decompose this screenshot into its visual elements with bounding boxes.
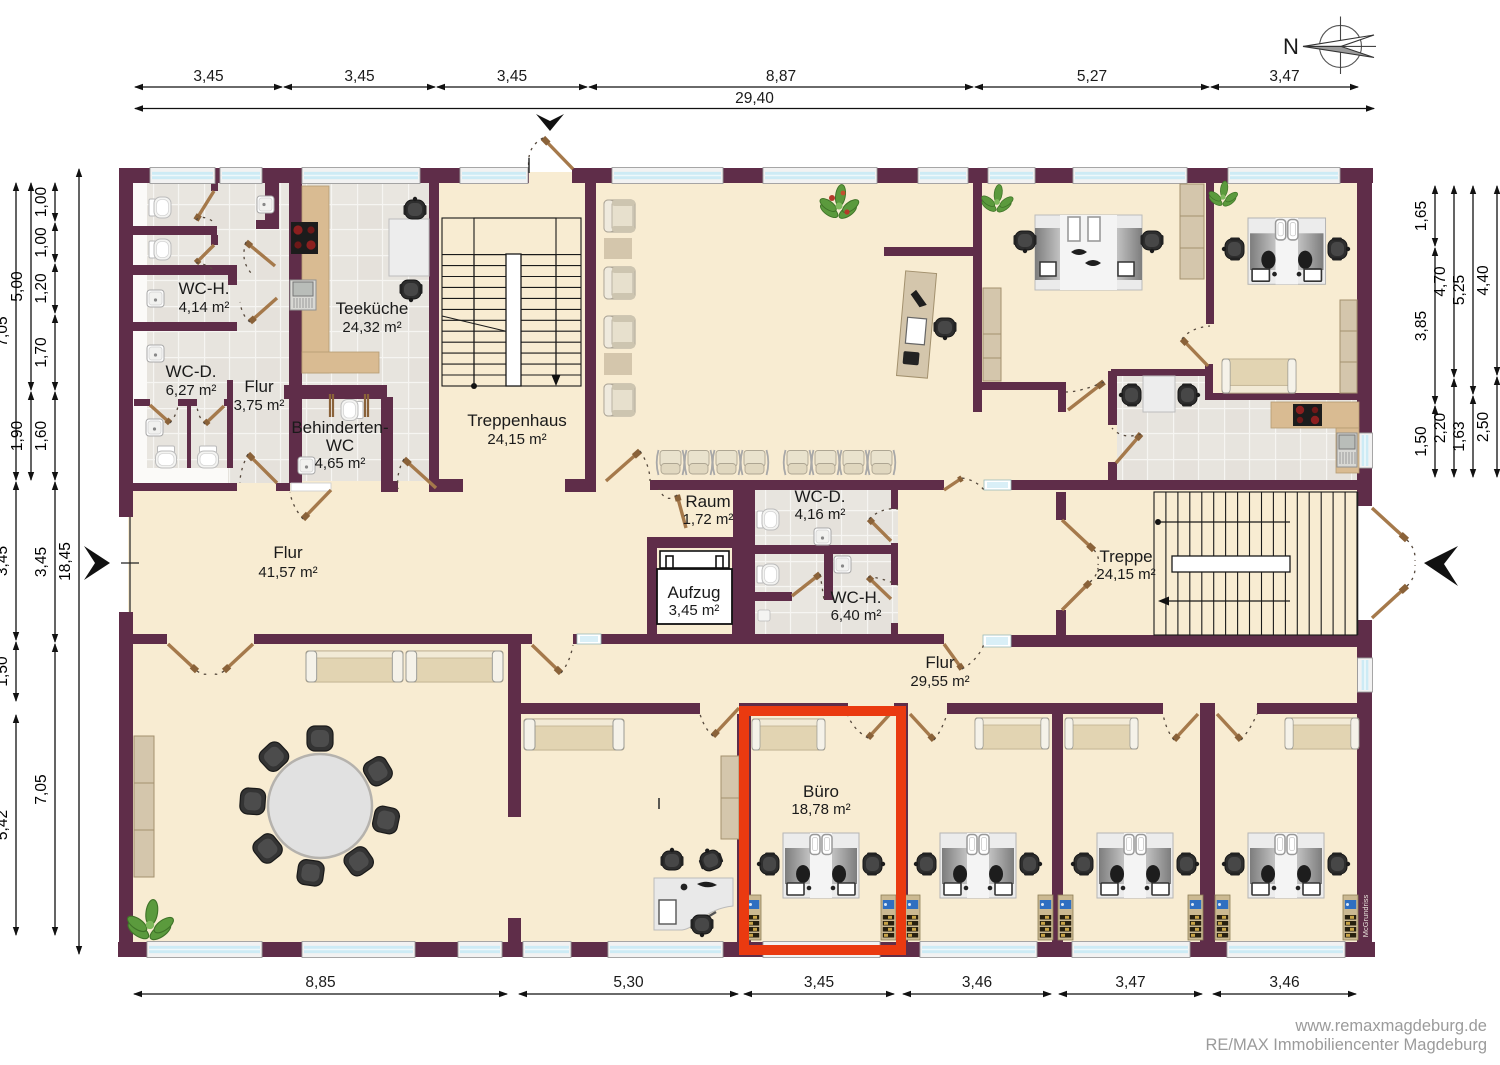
svg-text:5,30: 5,30 [613, 974, 644, 991]
svg-text:Aufzug: Aufzug [668, 583, 721, 602]
svg-text:5,25: 5,25 [1451, 275, 1468, 305]
svg-text:3,75 m²: 3,75 m² [234, 397, 285, 414]
svg-text:3,47: 3,47 [1269, 68, 1299, 85]
svg-text:3,45: 3,45 [33, 547, 50, 577]
svg-text:29,40: 29,40 [735, 90, 774, 107]
svg-text:Flur: Flur [244, 377, 274, 396]
svg-text:1,50: 1,50 [1413, 426, 1430, 457]
svg-text:8,85: 8,85 [305, 974, 335, 991]
svg-text:7,05: 7,05 [0, 316, 11, 346]
svg-text:3,45: 3,45 [0, 546, 11, 576]
svg-text:18,45: 18,45 [57, 542, 74, 581]
svg-text:Büro: Büro [803, 782, 839, 801]
svg-text:29,55 m²: 29,55 m² [910, 673, 969, 690]
svg-text:WC-H.: WC-H. [179, 279, 230, 298]
svg-text:3,46: 3,46 [1269, 974, 1299, 991]
svg-text:Flur: Flur [925, 653, 955, 672]
svg-text:3,85: 3,85 [1413, 311, 1430, 341]
svg-text:18,78 m²: 18,78 m² [791, 801, 850, 818]
svg-text:4,40: 4,40 [1475, 265, 1492, 296]
svg-text:7,05: 7,05 [33, 774, 50, 804]
svg-text:41,57 m²: 41,57 m² [258, 564, 317, 581]
svg-text:WC: WC [326, 436, 354, 455]
svg-text:24,32 m²: 24,32 m² [342, 319, 401, 336]
svg-text:Behinderten-: Behinderten- [291, 418, 388, 437]
svg-text:5,42: 5,42 [0, 810, 11, 840]
svg-text:1,00: 1,00 [33, 187, 50, 218]
svg-text:24,15 m²: 24,15 m² [1096, 566, 1155, 583]
svg-text:2,20: 2,20 [1432, 413, 1449, 444]
svg-text:6,40 m²: 6,40 m² [831, 607, 882, 624]
svg-text:3,45: 3,45 [804, 974, 834, 991]
svg-text:McGrundriss: McGrundriss [1361, 895, 1370, 938]
svg-text:3,45: 3,45 [497, 68, 527, 85]
svg-text:1,70: 1,70 [33, 337, 50, 368]
svg-text:WC-D.: WC-D. [166, 362, 217, 381]
svg-text:3,45: 3,45 [344, 68, 374, 85]
svg-text:3,45 m²: 3,45 m² [669, 602, 720, 619]
svg-text:4,14 m²: 4,14 m² [179, 299, 230, 316]
svg-text:1,65: 1,65 [1413, 201, 1430, 231]
svg-text:Treppenhaus: Treppenhaus [467, 411, 567, 430]
svg-text:4,65 m²: 4,65 m² [315, 455, 366, 472]
svg-text:1,63: 1,63 [1451, 421, 1468, 451]
svg-text:1,00: 1,00 [33, 227, 50, 258]
svg-text:WC-D.: WC-D. [795, 487, 846, 506]
svg-text:3,46: 3,46 [962, 974, 992, 991]
svg-text:4,16 m²: 4,16 m² [795, 506, 846, 523]
svg-text:WC-H.: WC-H. [831, 588, 882, 607]
svg-text:8,87: 8,87 [766, 68, 796, 85]
svg-text:Treppe: Treppe [1099, 547, 1152, 566]
svg-text:2,50: 2,50 [1475, 412, 1492, 443]
svg-text:www.remaxmagdeburg.de: www.remaxmagdeburg.de [1294, 1017, 1487, 1035]
svg-text:6,27 m²: 6,27 m² [166, 382, 217, 399]
svg-text:Teeküche: Teeküche [336, 299, 409, 318]
svg-text:1,20: 1,20 [33, 273, 50, 304]
svg-text:24,15 m²: 24,15 m² [487, 431, 546, 448]
svg-text:5,00: 5,00 [9, 271, 26, 302]
svg-text:3,45: 3,45 [193, 68, 223, 85]
svg-text:1,90: 1,90 [9, 421, 26, 452]
svg-text:1,60: 1,60 [33, 421, 50, 452]
svg-text:3,47: 3,47 [1115, 974, 1145, 991]
svg-text:5,27: 5,27 [1077, 68, 1107, 85]
svg-text:Flur: Flur [273, 543, 303, 562]
svg-text:RE/MAX Immobiliencenter Magdeb: RE/MAX Immobiliencenter Magdeburg [1205, 1036, 1487, 1054]
svg-text:1,50: 1,50 [0, 656, 11, 687]
svg-text:Raum: Raum [685, 492, 730, 511]
svg-text:4,70: 4,70 [1432, 266, 1449, 297]
svg-text:N: N [1283, 34, 1299, 59]
svg-text:1,72 m²: 1,72 m² [683, 511, 734, 528]
